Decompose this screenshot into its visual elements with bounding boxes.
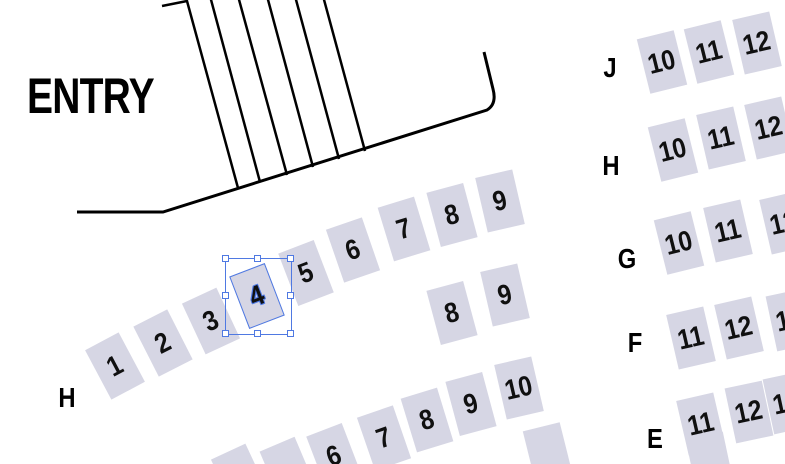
row-label-h-left: H: [58, 384, 75, 412]
seat-number: 13: [771, 386, 785, 419]
selection-resize-handle[interactable]: [222, 255, 229, 262]
selection-resize-handle[interactable]: [254, 330, 261, 337]
entry-label: ENTRY: [27, 71, 154, 121]
seat-number: 4: [246, 280, 269, 311]
seat-number: 12: [767, 206, 785, 239]
lane-line: [162, 1, 238, 188]
row-label-e-right: E: [647, 425, 663, 453]
seat-number: 3: [199, 305, 223, 336]
seat-number: 10: [662, 226, 695, 260]
seat-number: 8: [442, 298, 462, 329]
seat-number: 12: [740, 26, 773, 59]
selection-resize-handle[interactable]: [222, 330, 229, 337]
lane-line: [295, 0, 339, 159]
lane-line: [210, 0, 260, 182]
seat-number: 11: [675, 321, 707, 354]
seat-number: 6: [342, 235, 364, 266]
lane-line: [267, 0, 313, 167]
seat-number: 10: [656, 133, 689, 167]
seat-number: 1: [102, 350, 127, 381]
seat-number: 12: [722, 311, 755, 344]
seat-number: 5: [295, 257, 318, 288]
seat-map-canvas: ENTRY H12345678989678910J101112H101112G1…: [0, 0, 785, 464]
seat-number: 11: [705, 121, 737, 154]
lane-line: [323, 0, 365, 151]
selection-resize-handle[interactable]: [254, 255, 261, 262]
selection-resize-handle[interactable]: [222, 292, 229, 299]
seat-number: 11: [712, 214, 744, 247]
row-label-g-right: G: [618, 245, 637, 273]
seat-number: 10: [645, 45, 678, 79]
selection-resize-handle[interactable]: [287, 292, 294, 299]
seat-number: 7: [373, 423, 395, 454]
row-label-j-right: J: [603, 54, 616, 82]
seat-number: 9: [490, 186, 510, 216]
seat-number: 12: [733, 395, 766, 428]
seat-number: 2: [151, 327, 176, 358]
seat-number: 12: [752, 111, 785, 144]
seat-number: 6: [323, 440, 346, 464]
row-label-f-right: F: [628, 329, 643, 357]
seat-number: 10: [502, 371, 535, 404]
row-label-h-right: H: [602, 152, 619, 180]
seat-number: 11: [693, 35, 725, 68]
seat-number: 9: [495, 280, 515, 310]
lane-line: [238, 0, 287, 175]
seat-number: 8: [442, 200, 462, 231]
seat-number: 9: [461, 389, 481, 420]
seat-number: 7: [393, 214, 414, 245]
seat-number: 13: [774, 303, 785, 336]
selection-resize-handle[interactable]: [287, 255, 294, 262]
selection-resize-handle[interactable]: [287, 330, 294, 337]
seat-number: 8: [416, 405, 437, 436]
